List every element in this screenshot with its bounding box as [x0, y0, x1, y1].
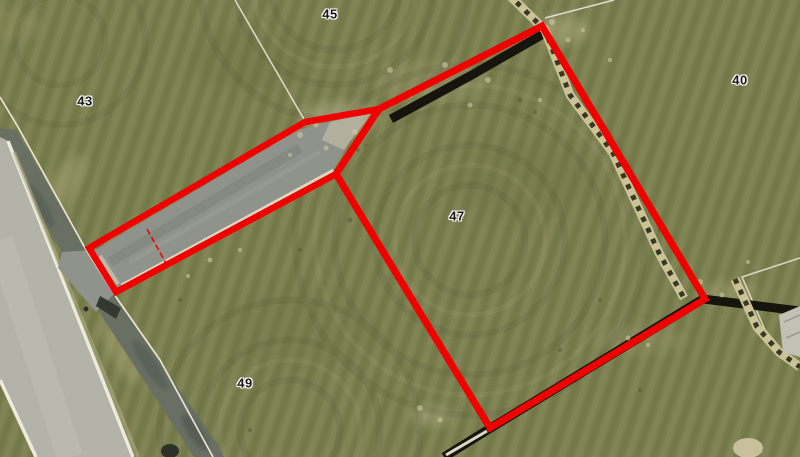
parcel-label-43: 43: [77, 94, 92, 109]
parcel-label-47: 47: [449, 209, 464, 224]
post-dot: [84, 307, 89, 312]
parcel-label-40: 40: [732, 73, 747, 88]
parcel-label-45: 45: [322, 7, 337, 22]
parcel-label-49: 49: [237, 376, 252, 391]
map-canvas[interactable]: 4345404749: [0, 0, 800, 457]
aerial-imagery: [0, 0, 800, 457]
